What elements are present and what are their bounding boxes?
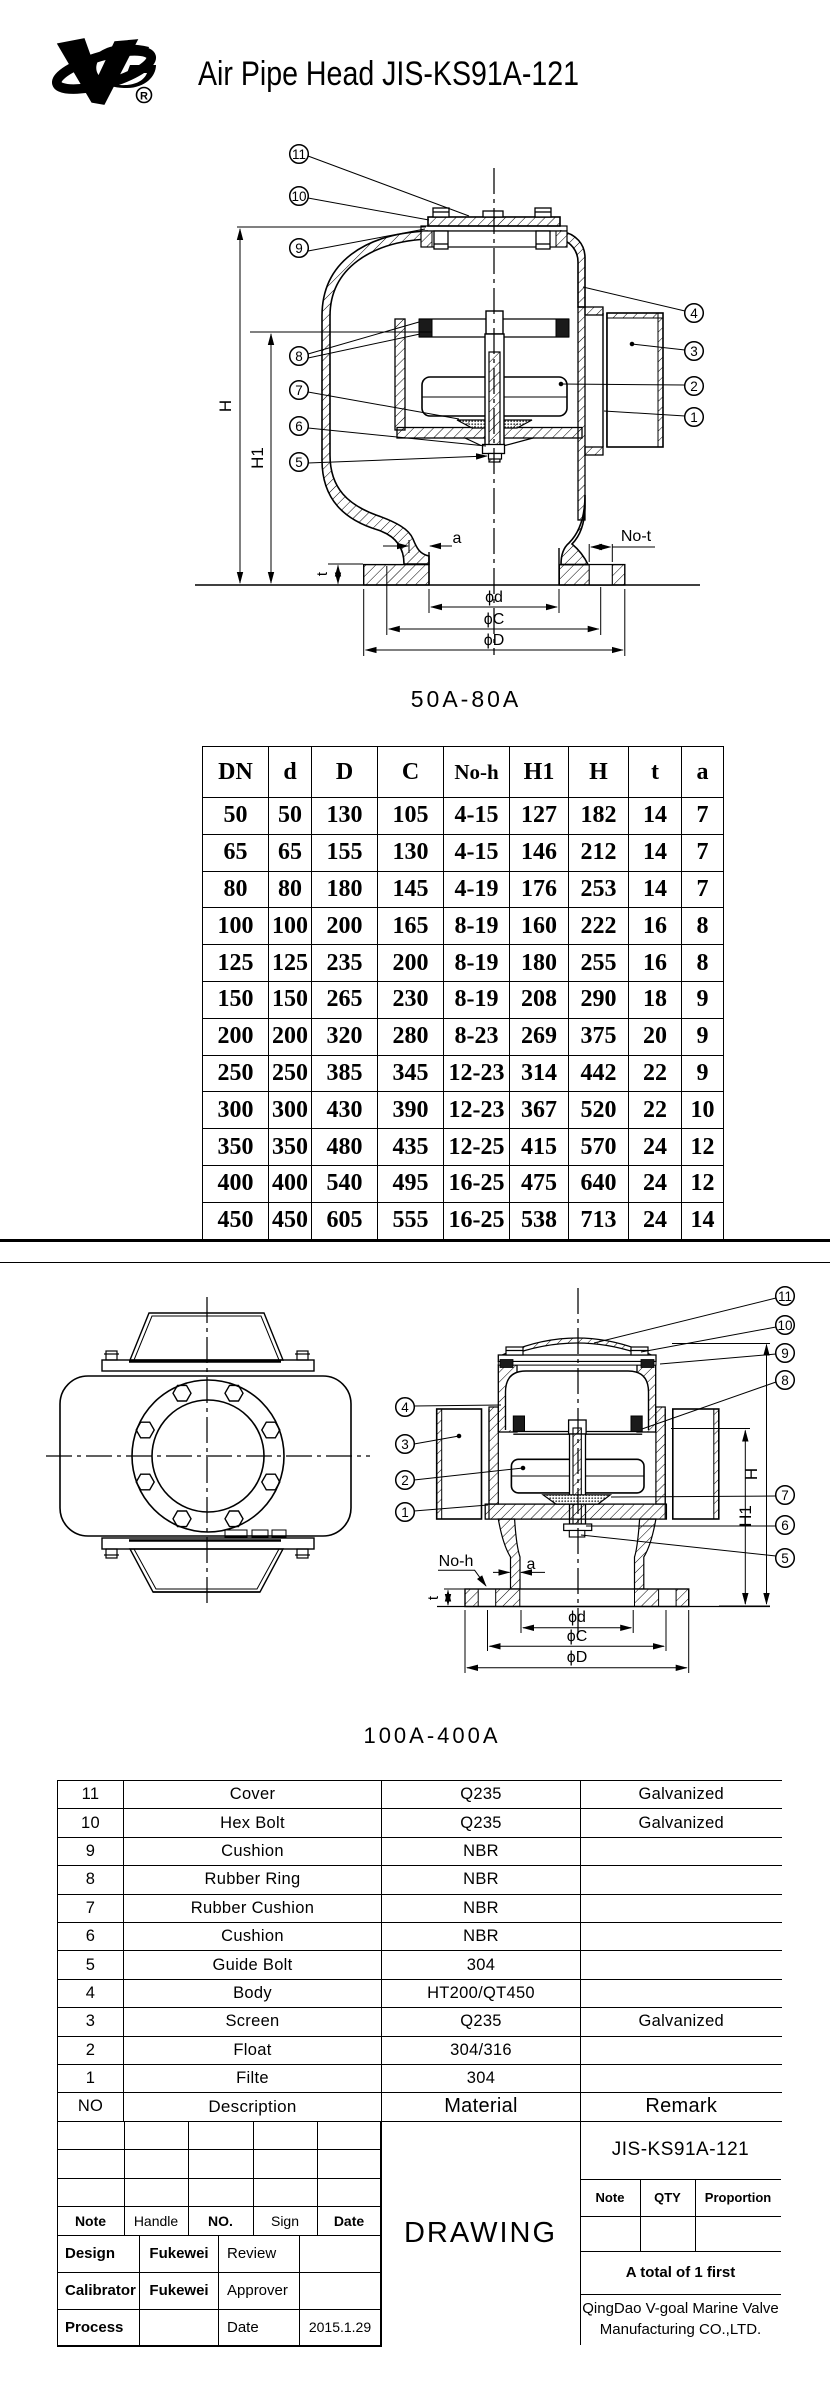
svg-text:7: 7 (781, 1488, 789, 1503)
svg-text:9: 9 (781, 1346, 789, 1361)
svg-text:2: 2 (690, 379, 698, 394)
svg-text:t: t (425, 1595, 442, 1600)
svg-text:11: 11 (292, 147, 306, 162)
svg-text:a: a (527, 1556, 536, 1573)
svg-text:8: 8 (295, 349, 303, 364)
svg-text:11: 11 (778, 1289, 792, 1304)
svg-text:1: 1 (401, 1505, 409, 1520)
svg-text:7: 7 (295, 383, 303, 398)
svg-text:ϕC: ϕC (484, 611, 505, 628)
svg-text:ϕD: ϕD (484, 632, 505, 649)
svg-text:5: 5 (781, 1551, 789, 1566)
svg-text:5: 5 (295, 455, 303, 470)
svg-text:a: a (453, 530, 462, 547)
svg-text:H1: H1 (248, 447, 267, 469)
svg-text:ϕd: ϕd (568, 1609, 586, 1626)
svg-text:2: 2 (401, 1473, 409, 1488)
svg-text:No-h: No-h (439, 1553, 474, 1570)
svg-text:10: 10 (777, 1318, 792, 1333)
svg-text:3: 3 (690, 344, 698, 359)
svg-text:4: 4 (401, 1400, 409, 1415)
svg-text:10: 10 (291, 189, 306, 204)
svg-text:t: t (314, 571, 331, 576)
svg-text:R: R (140, 91, 148, 103)
svg-text:ϕd: ϕd (485, 589, 503, 606)
svg-text:No-t: No-t (621, 528, 652, 545)
svg-text:H: H (216, 400, 235, 412)
svg-text:8: 8 (781, 1373, 789, 1388)
svg-text:9: 9 (295, 241, 303, 256)
svg-text:4: 4 (690, 306, 698, 321)
svg-text:H1: H1 (736, 1505, 755, 1527)
svg-text:6: 6 (295, 419, 303, 434)
svg-text:3: 3 (401, 1437, 409, 1452)
svg-text:1: 1 (690, 410, 698, 425)
svg-text:6: 6 (781, 1518, 789, 1533)
svg-text:ϕC: ϕC (567, 1628, 588, 1645)
svg-text:ϕD: ϕD (567, 1649, 588, 1666)
